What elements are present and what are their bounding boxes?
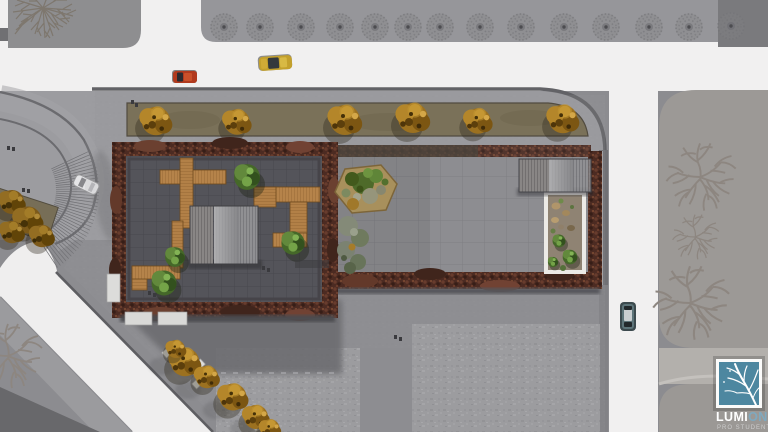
- svg-text:PRO STUDENT: PRO STUDENT: [717, 425, 768, 431]
- svg-text:LUMION: LUMION: [716, 410, 768, 424]
